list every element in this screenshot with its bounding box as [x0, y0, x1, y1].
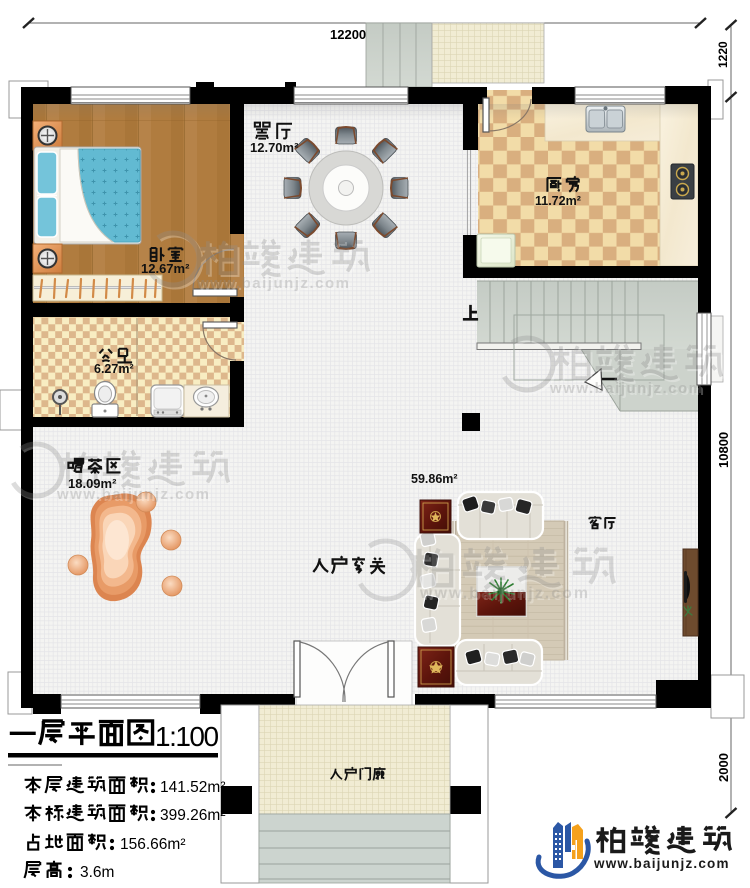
svg-text:10800: 10800: [716, 432, 731, 468]
svg-text:1:100: 1:100: [155, 721, 218, 752]
svg-text:2000: 2000: [716, 753, 731, 782]
svg-text:12200: 12200: [330, 27, 366, 42]
svg-text:www.baijunjz.com: www.baijunjz.com: [593, 856, 730, 871]
svg-text:18.09m²: 18.09m²: [68, 476, 117, 491]
svg-text:59.86m²: 59.86m²: [411, 472, 458, 486]
svg-text:141.52m²: 141.52m²: [160, 779, 225, 796]
svg-text:6.27m²: 6.27m²: [94, 362, 134, 376]
svg-text:1220: 1220: [716, 41, 730, 68]
svg-text:11.72m²: 11.72m²: [535, 194, 581, 208]
svg-text:www.baijunjz.com: www.baijunjz.com: [196, 275, 350, 292]
svg-text:12.70m²: 12.70m²: [250, 140, 299, 155]
svg-text:156.66m²: 156.66m²: [120, 836, 185, 853]
svg-text:12.67m²: 12.67m²: [141, 261, 190, 276]
svg-text:399.26m²: 399.26m²: [160, 807, 225, 824]
svg-text:3.6m: 3.6m: [80, 864, 114, 881]
svg-text:www.baijunjz.com: www.baijunjz.com: [419, 585, 590, 602]
svg-text:www.baijunjz.com: www.baijunjz.com: [549, 380, 703, 397]
